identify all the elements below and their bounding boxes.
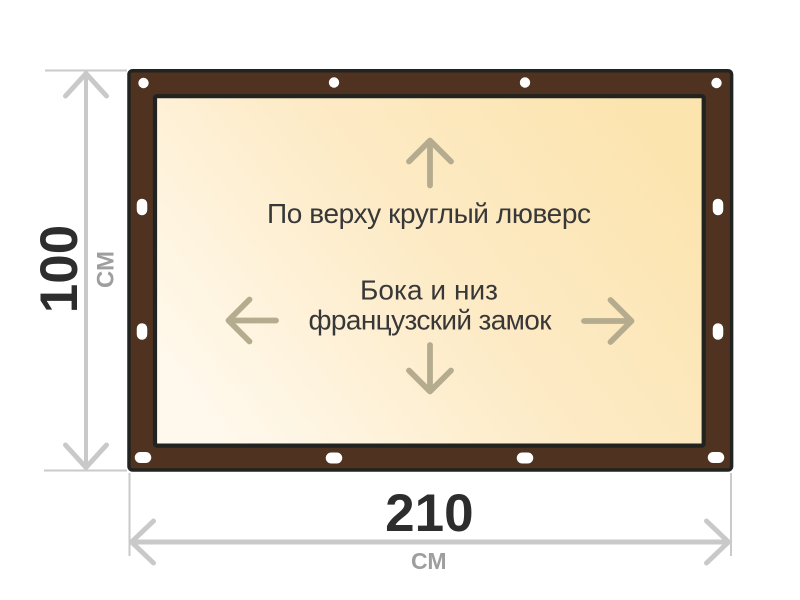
svg-text:Бока и низ: Бока и низ — [360, 275, 498, 306]
svg-text:СМ: СМ — [411, 548, 446, 574]
svg-text:210: 210 — [385, 484, 473, 543]
svg-text:По верху круглый люверс: По верху круглый люверс — [267, 198, 591, 229]
svg-text:СМ: СМ — [93, 251, 120, 288]
svg-text:французский замок: французский замок — [309, 305, 553, 336]
svg-text:100: 100 — [30, 225, 89, 313]
